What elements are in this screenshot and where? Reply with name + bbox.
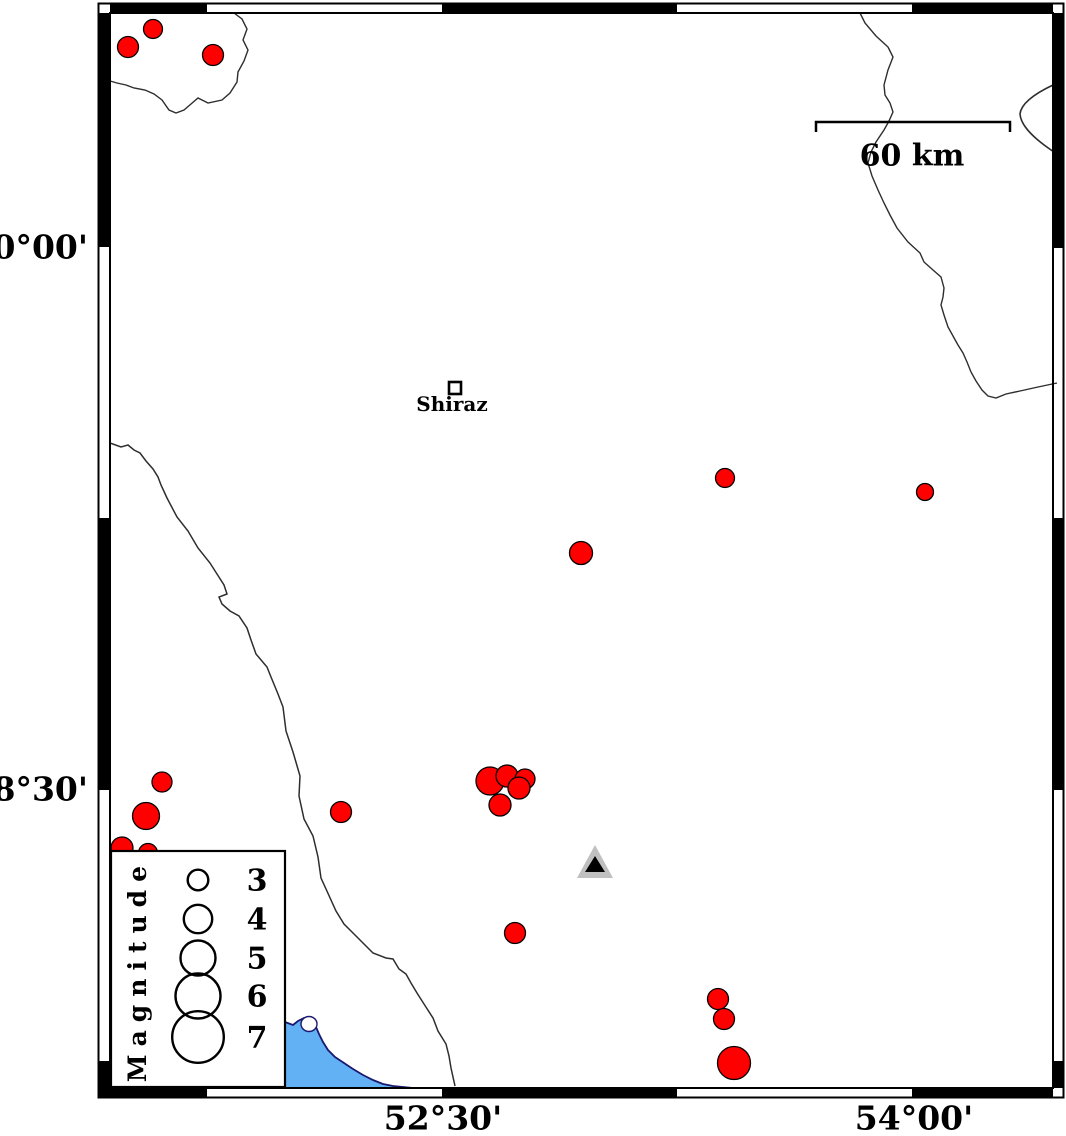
legend-magnitude-value: 4 bbox=[247, 903, 268, 938]
frame-segment bbox=[1053, 13, 1064, 248]
epicenter-marker bbox=[714, 1009, 735, 1030]
epicenter-marker bbox=[203, 45, 224, 66]
frame-segment bbox=[99, 1061, 111, 1088]
legend-magnitude-value: 5 bbox=[247, 942, 268, 977]
frame-segment bbox=[98, 1088, 207, 1098]
epicenter-marker bbox=[708, 989, 729, 1010]
lat-label-30-00: 30°00' bbox=[0, 228, 88, 267]
frame-segment bbox=[1053, 1061, 1064, 1088]
epicenter-marker bbox=[505, 923, 526, 944]
epicenter-marker bbox=[144, 20, 163, 39]
epicenter-marker bbox=[716, 469, 735, 488]
epicenter-marker bbox=[489, 794, 511, 816]
coast-lagoon bbox=[301, 1017, 317, 1032]
frame-segment bbox=[442, 4, 677, 13]
legend-title: Magnitude bbox=[123, 858, 152, 1082]
legend-magnitude-value: 6 bbox=[247, 980, 268, 1015]
magnitude-legend: Magnitude 34567 bbox=[111, 851, 285, 1087]
frame-segment bbox=[110, 4, 207, 13]
epicenter-marker bbox=[508, 777, 530, 799]
legend-magnitude-value: 7 bbox=[247, 1021, 268, 1056]
seismicity-map: Shiraz 60 km 30°00' 28°30' 52°30' 54°00' bbox=[0, 0, 1066, 1136]
epicenter-marker bbox=[331, 802, 352, 823]
epicenter-marker bbox=[917, 484, 934, 501]
frame-segment bbox=[1053, 518, 1064, 790]
scale-bar-label: 60 km bbox=[860, 139, 965, 174]
frame-segment bbox=[912, 1088, 1053, 1098]
seismicity-map-page: Shiraz 60 km 30°00' 28°30' 52°30' 54°00' bbox=[0, 0, 1066, 1136]
legend-values: 34567 bbox=[247, 864, 268, 1056]
frame-segment bbox=[912, 4, 1053, 13]
lat-label-28-30: 28°30' bbox=[0, 770, 88, 809]
city-label: Shiraz bbox=[416, 392, 487, 416]
frame-segment bbox=[99, 13, 111, 247]
frame-segment bbox=[442, 1088, 677, 1098]
frame-segment bbox=[99, 518, 111, 790]
epicenter-marker bbox=[152, 772, 172, 792]
lon-label-52-30: 52°30' bbox=[384, 1099, 502, 1136]
epicenter-marker bbox=[118, 37, 139, 58]
lon-label-54-00: 54°00' bbox=[855, 1099, 973, 1136]
legend-magnitude-value: 3 bbox=[247, 864, 268, 899]
epicenter-marker bbox=[133, 803, 160, 830]
epicenter-marker bbox=[570, 542, 593, 565]
epicenter-marker bbox=[718, 1047, 751, 1080]
